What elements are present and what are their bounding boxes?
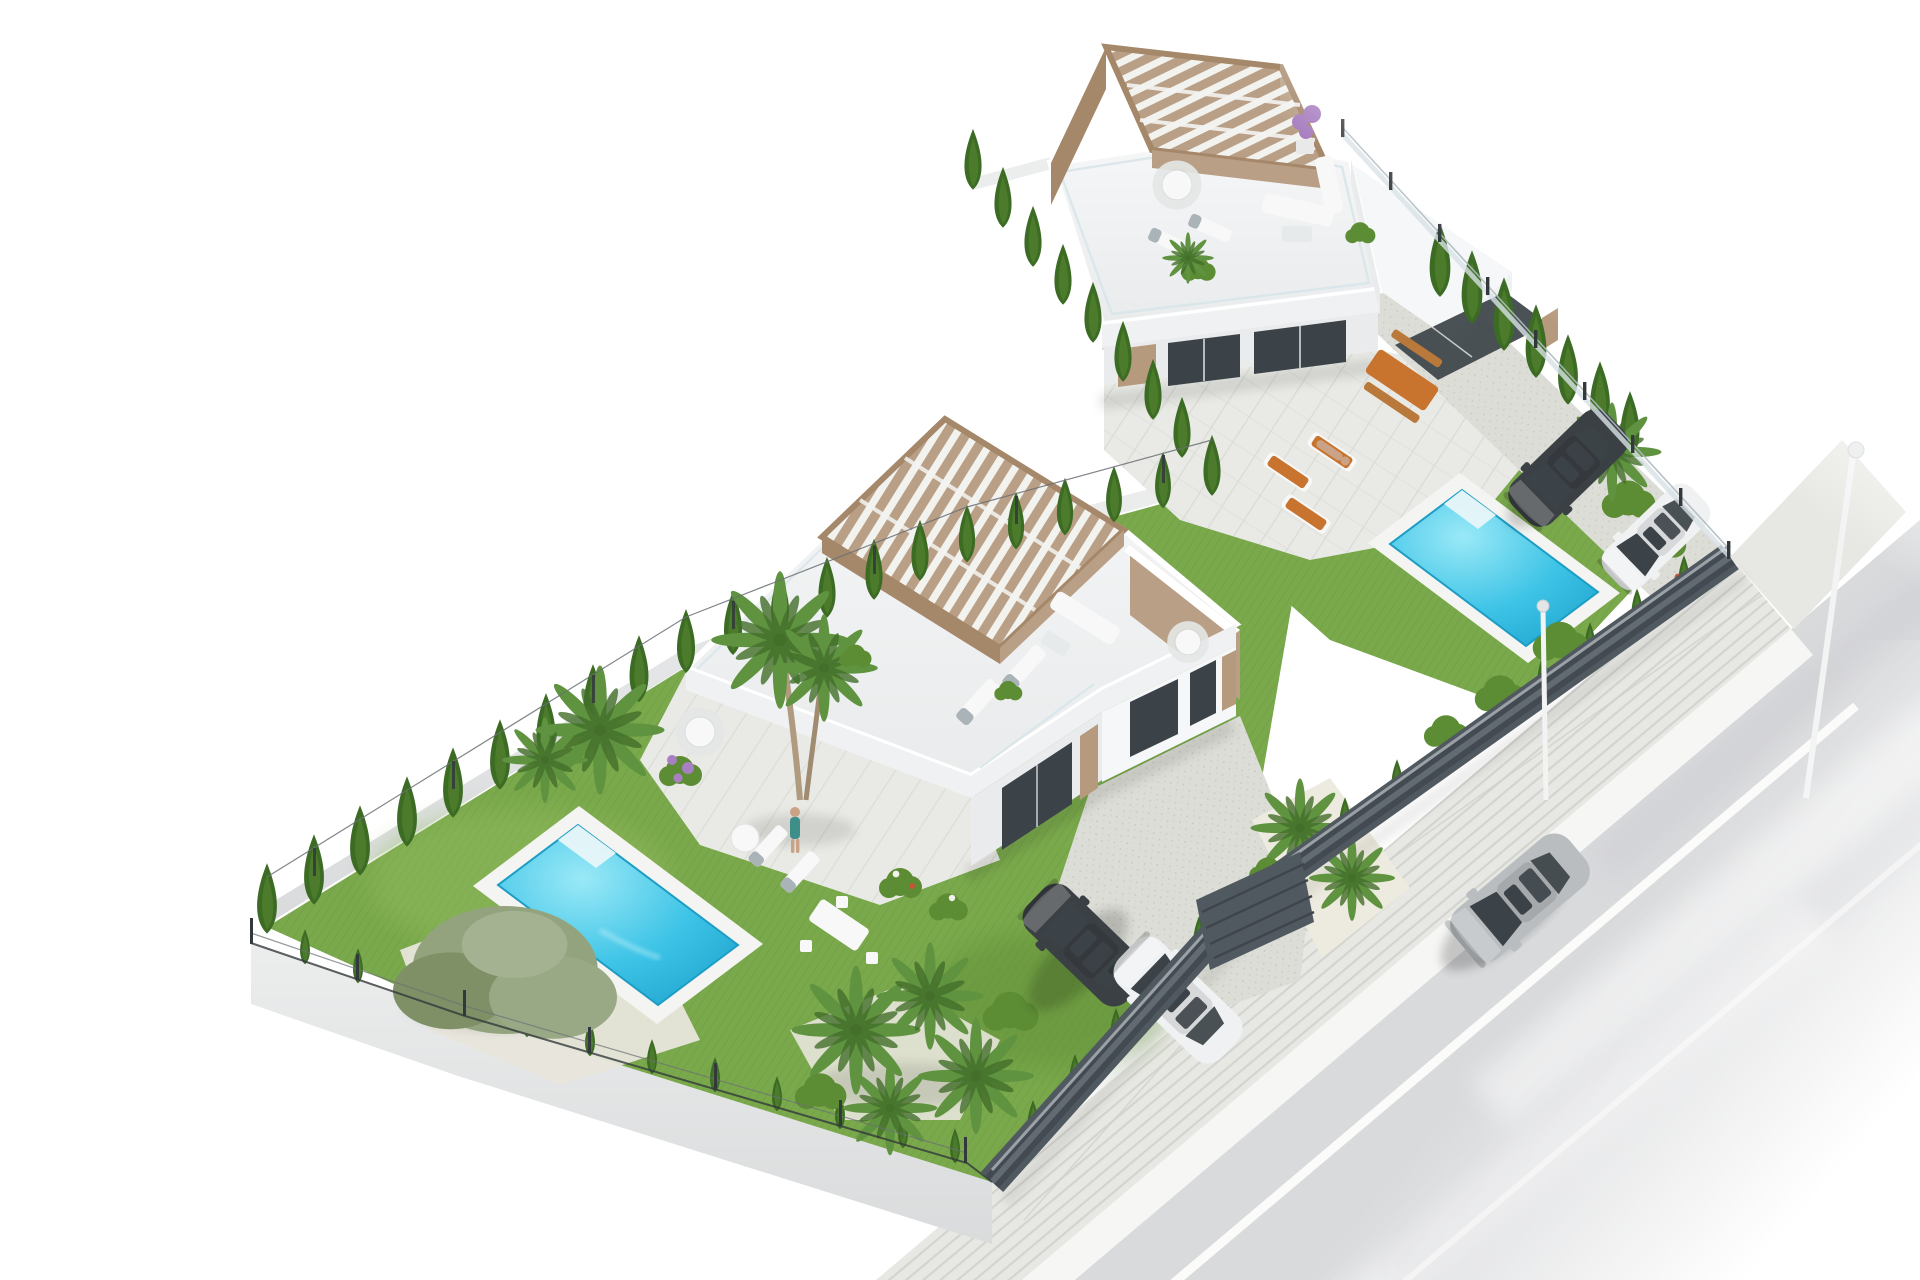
garden-b-parasol	[731, 824, 759, 852]
render-canvas	[0, 0, 1920, 1280]
villa-aerial-render	[0, 0, 1920, 1280]
villa-a-side-wall	[973, 163, 1051, 184]
